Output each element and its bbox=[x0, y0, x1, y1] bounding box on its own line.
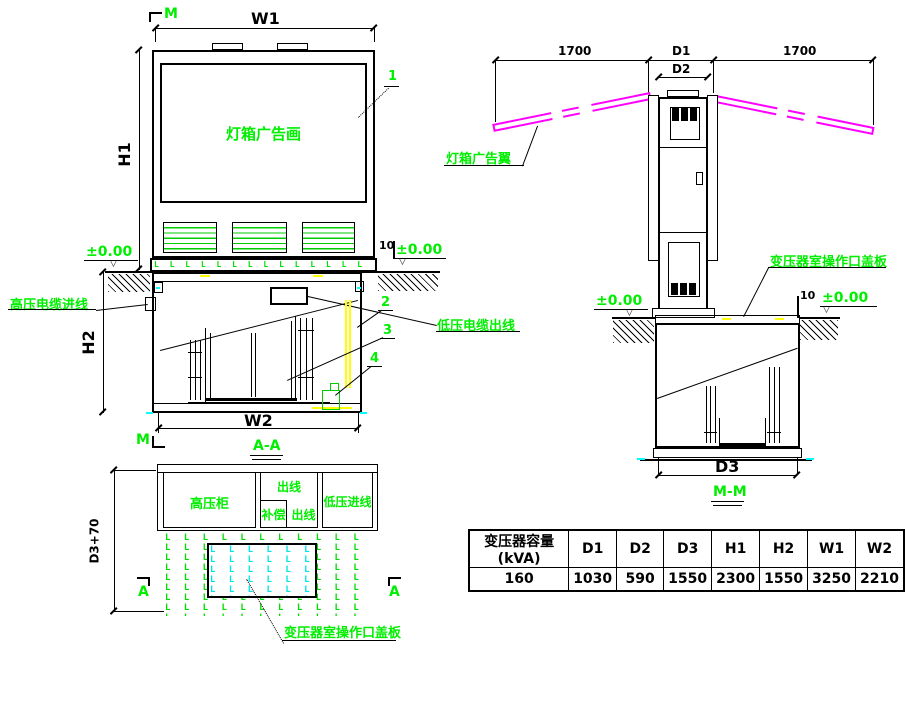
dim-label-h2: H2 bbox=[79, 330, 98, 355]
cover-yellow-mark bbox=[200, 275, 210, 277]
label-underline bbox=[436, 331, 520, 332]
dim-ext-line bbox=[374, 28, 375, 42]
title-underline bbox=[252, 459, 281, 460]
vent-stack bbox=[672, 108, 679, 121]
section-marker-a-left: A bbox=[138, 584, 149, 600]
callout-1: 1 bbox=[388, 69, 397, 84]
ground-hatch bbox=[378, 274, 438, 291]
wing-dash-gap bbox=[578, 103, 593, 117]
dim-ext-line bbox=[158, 412, 159, 433]
transformer-fin bbox=[710, 386, 711, 443]
label-underline bbox=[8, 309, 96, 310]
column-divider bbox=[659, 232, 707, 233]
fin-crossbar bbox=[188, 377, 202, 378]
transformer-base bbox=[188, 402, 330, 404]
title-underline bbox=[713, 505, 742, 506]
dim-label-d3: D3 bbox=[715, 457, 739, 476]
cover-yellow-mark bbox=[722, 318, 731, 320]
transformer-tank bbox=[765, 418, 766, 445]
transformer-fin bbox=[715, 386, 716, 443]
level-label-right: ±0.00 bbox=[396, 242, 442, 258]
lv-incoming-label: 低压进线 bbox=[320, 493, 375, 510]
dim-ext-line bbox=[495, 60, 496, 122]
dim-ext-line bbox=[358, 412, 359, 433]
spec-value-cell: 160 bbox=[469, 568, 569, 591]
fitting-mark bbox=[156, 287, 160, 289]
dim-line-h2 bbox=[103, 272, 104, 413]
dim-label-10: 10 bbox=[800, 289, 815, 302]
dim-line-top bbox=[495, 60, 873, 61]
transformer-fin bbox=[706, 386, 707, 443]
wing-dash-gap bbox=[551, 109, 564, 123]
spec-header-cell: H2 bbox=[760, 530, 808, 568]
spec-value-cell: 3250 bbox=[808, 568, 856, 591]
outgoing-bottom-label: 出线 bbox=[289, 506, 318, 523]
ground-line bbox=[612, 317, 656, 319]
vault-cover-inner-line bbox=[154, 281, 360, 282]
spec-value-cell: 2210 bbox=[856, 568, 904, 591]
cover-label-leader bbox=[743, 268, 769, 317]
dim-label-1700-left: 1700 bbox=[558, 44, 591, 58]
ad-panel-label: 灯箱广告画 bbox=[160, 123, 367, 144]
label-underline bbox=[444, 165, 524, 166]
earth-box-cap bbox=[330, 383, 339, 391]
dim-label-w1: W1 bbox=[251, 9, 280, 28]
roof-vent bbox=[277, 43, 308, 50]
ext-mark bbox=[146, 412, 153, 414]
spec-table-body: 变压器容量(kVA)D1D2D3H1H2W1W21601030590155023… bbox=[469, 530, 904, 591]
cover-plate-label-plan: 变压器室操作口盖板 bbox=[284, 622, 401, 641]
dim-label-d2: D2 bbox=[672, 62, 690, 76]
level-triangle-icon: ▽ bbox=[823, 306, 830, 315]
section-title-mm: M-M bbox=[713, 484, 747, 500]
lv-junction-box bbox=[270, 287, 308, 305]
transformer-fin bbox=[200, 340, 201, 400]
transformer-tank bbox=[255, 333, 256, 397]
louver-grille bbox=[302, 222, 355, 253]
spec-header-cell: D3 bbox=[664, 530, 712, 568]
section-cut-line bbox=[152, 446, 165, 448]
dim-ext-line bbox=[648, 60, 649, 93]
section-marker-a-right: A bbox=[389, 584, 400, 600]
dim-ext-line bbox=[114, 470, 156, 471]
ground-hatch bbox=[108, 274, 150, 292]
dim-ext-line bbox=[797, 458, 798, 475]
fitting-mark bbox=[357, 287, 361, 289]
level-triangle-icon: ▽ bbox=[110, 260, 117, 269]
lv-cable-yellow bbox=[345, 300, 347, 388]
spec-header-cell: D2 bbox=[617, 530, 664, 568]
callout-4: 4 bbox=[370, 351, 379, 366]
transformer-tank bbox=[251, 333, 252, 397]
ground-line bbox=[799, 317, 840, 319]
ground-hatch bbox=[800, 320, 838, 340]
transformer-tank-bottom bbox=[205, 398, 297, 401]
fin-crossbar bbox=[298, 330, 314, 331]
dim-label-h1: H1 bbox=[115, 142, 134, 167]
dim-ext-line bbox=[155, 28, 156, 42]
vent-stack bbox=[681, 108, 688, 121]
title-underline bbox=[711, 501, 744, 502]
dim-line-plan bbox=[114, 470, 115, 612]
lv-cable-yellow bbox=[349, 300, 351, 388]
ad-wing-right bbox=[715, 95, 874, 135]
section-cut-line bbox=[388, 577, 401, 579]
transformer-tank bbox=[719, 418, 720, 445]
ad-wing-left bbox=[492, 92, 651, 132]
dim-ext-line bbox=[873, 60, 874, 125]
dim-line-w1 bbox=[155, 28, 374, 29]
transformer-fin bbox=[190, 340, 191, 400]
wing-dash-gap bbox=[803, 112, 818, 126]
dim-label-d3-70: D3+70 bbox=[88, 518, 102, 563]
vent-stack bbox=[680, 283, 687, 295]
spec-header-cell: 变压器容量(kVA) bbox=[469, 530, 569, 568]
operation-cover-pattern: L L L L L L L L L L L L L L L L L L L L … bbox=[210, 545, 314, 596]
dim-tick bbox=[99, 408, 106, 415]
transformer-tank bbox=[205, 328, 206, 402]
hv-cable-label: 高压电缆进线 bbox=[10, 294, 88, 313]
spec-header-cell: W2 bbox=[856, 530, 904, 568]
fin-crossbar bbox=[298, 377, 314, 378]
vent-stack bbox=[689, 283, 696, 295]
cad-drawing-sheet: M W1 H1 灯箱广告画 1 L L L L L L L L L L L L … bbox=[0, 0, 905, 724]
spec-header-cell: D1 bbox=[569, 530, 617, 568]
dim-label-d1: D1 bbox=[672, 44, 690, 58]
label-underline bbox=[282, 640, 396, 641]
dim-ext-line bbox=[713, 60, 714, 93]
spec-header-cell: W1 bbox=[808, 530, 856, 568]
title-underline bbox=[250, 455, 283, 456]
vent-stack bbox=[671, 283, 678, 295]
dim-label-w2: W2 bbox=[244, 411, 273, 430]
roof-vent bbox=[212, 43, 243, 50]
hv-cabinet-label: 高压柜 bbox=[163, 493, 256, 512]
dim-ext-line bbox=[658, 458, 659, 475]
column-side-frame bbox=[707, 95, 718, 261]
dim-label-1700-right: 1700 bbox=[783, 44, 816, 58]
callout-underline bbox=[384, 86, 399, 87]
column-top-cap bbox=[667, 90, 699, 97]
cover-plate-pattern: L L L L L L L L L L L L L L L L L L L L … bbox=[154, 259, 374, 270]
spec-table: 变压器容量(kVA)D1D2D3H1H2W1W21601030590155023… bbox=[468, 529, 905, 592]
transformer-tank-bottom bbox=[719, 443, 766, 446]
transformer-tank bbox=[210, 333, 211, 401]
section-marker-m-top: M bbox=[164, 6, 178, 22]
fin-crossbar bbox=[188, 352, 202, 353]
transformer-tank bbox=[295, 316, 296, 401]
cover-yellow-mark bbox=[313, 275, 323, 277]
section-title-aa: A-A bbox=[253, 438, 280, 454]
section-cut-line bbox=[149, 12, 151, 22]
section-cut-line bbox=[149, 12, 162, 14]
fin-crossbar bbox=[704, 432, 717, 433]
dim-line-h1 bbox=[139, 50, 140, 270]
ext-mark bbox=[806, 458, 814, 460]
level-triangle-icon: ▽ bbox=[399, 258, 406, 267]
ground-hatch bbox=[613, 320, 654, 343]
section-marker-m-bottom: M bbox=[136, 432, 150, 448]
level-underline bbox=[594, 309, 648, 310]
column-divider bbox=[659, 147, 707, 148]
spec-value-cell: 1550 bbox=[664, 568, 712, 591]
transformer-fin bbox=[195, 340, 196, 400]
dim-line-10 bbox=[393, 241, 395, 259]
label-underline bbox=[768, 267, 886, 268]
dim-line-d2 bbox=[658, 77, 708, 78]
louver-grille bbox=[232, 222, 287, 253]
ext-mark bbox=[637, 458, 645, 460]
spec-value-cell: 590 bbox=[617, 568, 664, 591]
callout-2: 2 bbox=[381, 295, 390, 310]
level-label-right: ±0.00 bbox=[822, 290, 868, 306]
ext-mark bbox=[360, 412, 367, 414]
fin-crossbar bbox=[767, 432, 781, 433]
callout-3: 3 bbox=[383, 323, 392, 338]
spec-value-cell: 1550 bbox=[760, 568, 808, 591]
spec-value-cell: 1030 bbox=[569, 568, 617, 591]
dim-ext-line bbox=[114, 611, 164, 612]
level-label-left: ±0.00 bbox=[86, 244, 132, 260]
spec-value-cell: 2300 bbox=[712, 568, 760, 591]
level-label-left: ±0.00 bbox=[596, 293, 642, 309]
louver-grille bbox=[163, 222, 217, 253]
dim-tick bbox=[704, 73, 711, 80]
wing-label-leader bbox=[522, 126, 538, 167]
spec-header-cell: H1 bbox=[712, 530, 760, 568]
vent-stack bbox=[690, 108, 697, 121]
door-handle bbox=[696, 172, 703, 185]
transformer-tank bbox=[291, 321, 292, 401]
compensation-label: 补偿 bbox=[260, 506, 287, 523]
outgoing-top-label: 出线 bbox=[260, 478, 318, 495]
wing-dash-gap bbox=[775, 106, 788, 120]
cover-yellow-mark bbox=[775, 318, 784, 320]
